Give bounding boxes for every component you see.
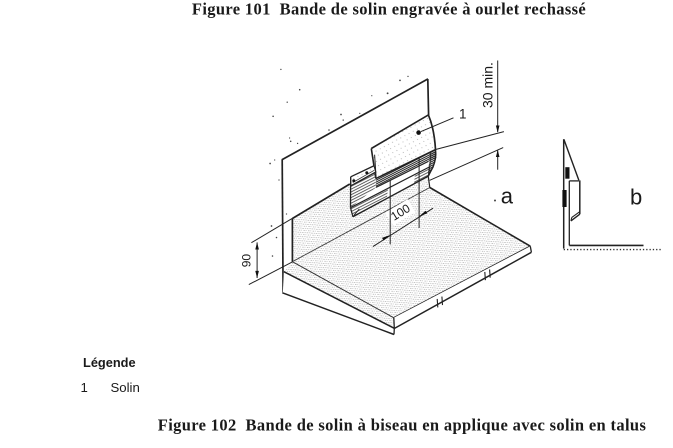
svg-text:Légende: Légende xyxy=(83,355,136,370)
svg-text:Figure 102 Bande de solin à b: Figure 102 Bande de solin à biseau en ap… xyxy=(158,416,647,435)
svg-text:30 min.: 30 min. xyxy=(479,62,495,108)
svg-text:90: 90 xyxy=(239,254,253,268)
svg-text:1: 1 xyxy=(459,107,467,122)
svg-text:a: a xyxy=(501,183,514,208)
svg-text:Figure 101 Bande de solin eng: Figure 101 Bande de solin engravée à our… xyxy=(192,0,586,19)
svg-text:b: b xyxy=(630,184,642,209)
svg-text:Solin: Solin xyxy=(111,380,140,395)
svg-text:1: 1 xyxy=(81,380,88,395)
